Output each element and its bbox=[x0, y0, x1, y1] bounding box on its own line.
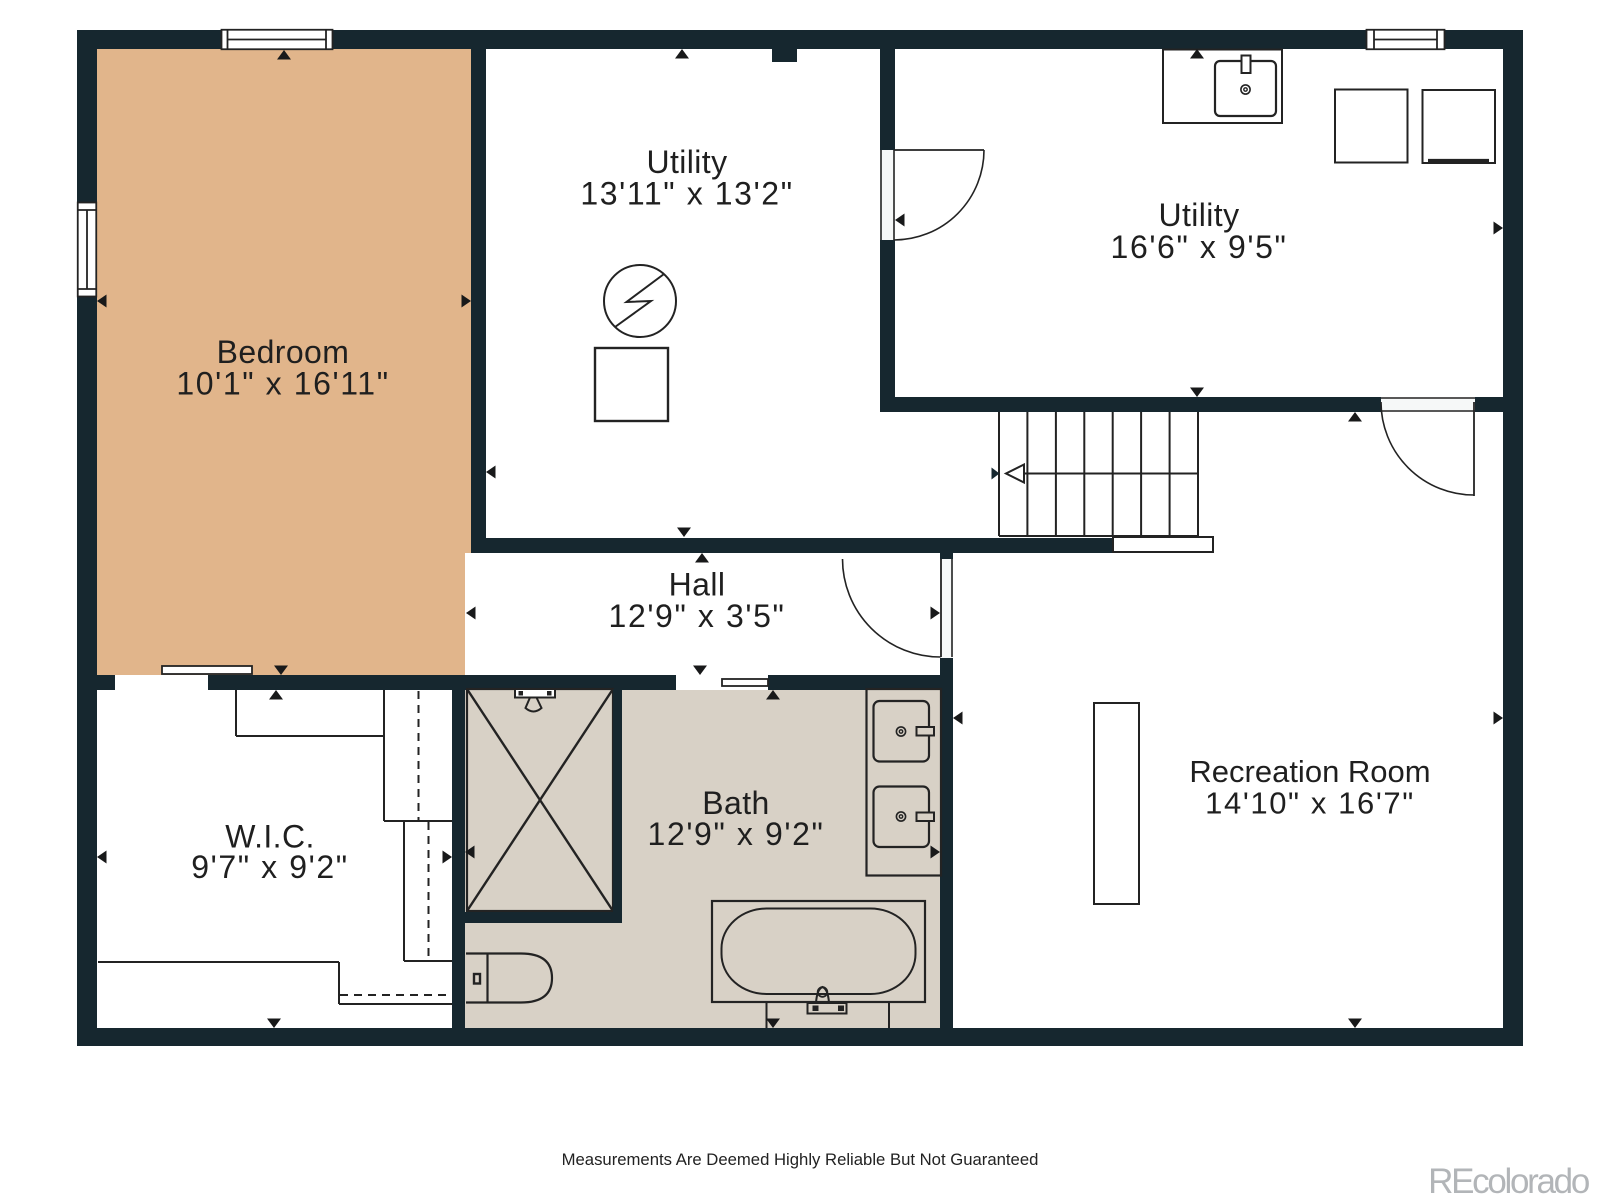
svg-text:Utility: Utility bbox=[1158, 197, 1239, 233]
svg-text:12'9" x 9'2": 12'9" x 9'2" bbox=[648, 816, 825, 852]
svg-text:14'10" x 16'7": 14'10" x 16'7" bbox=[1205, 786, 1415, 821]
svg-text:10'1" x 16'11": 10'1" x 16'11" bbox=[176, 366, 389, 402]
svg-text:Measurements Are Deemed Highly: Measurements Are Deemed Highly Reliable … bbox=[562, 1150, 1039, 1169]
svg-text:Recreation Room: Recreation Room bbox=[1189, 754, 1430, 789]
svg-text:12'9" x 3'5": 12'9" x 3'5" bbox=[609, 598, 786, 634]
svg-text:REcolorado: REcolorado bbox=[1428, 1162, 1589, 1200]
svg-text:9'7" x 9'2": 9'7" x 9'2" bbox=[191, 849, 349, 885]
svg-text:13'11" x 13'2": 13'11" x 13'2" bbox=[580, 176, 793, 212]
svg-text:16'6" x 9'5": 16'6" x 9'5" bbox=[1111, 229, 1288, 265]
